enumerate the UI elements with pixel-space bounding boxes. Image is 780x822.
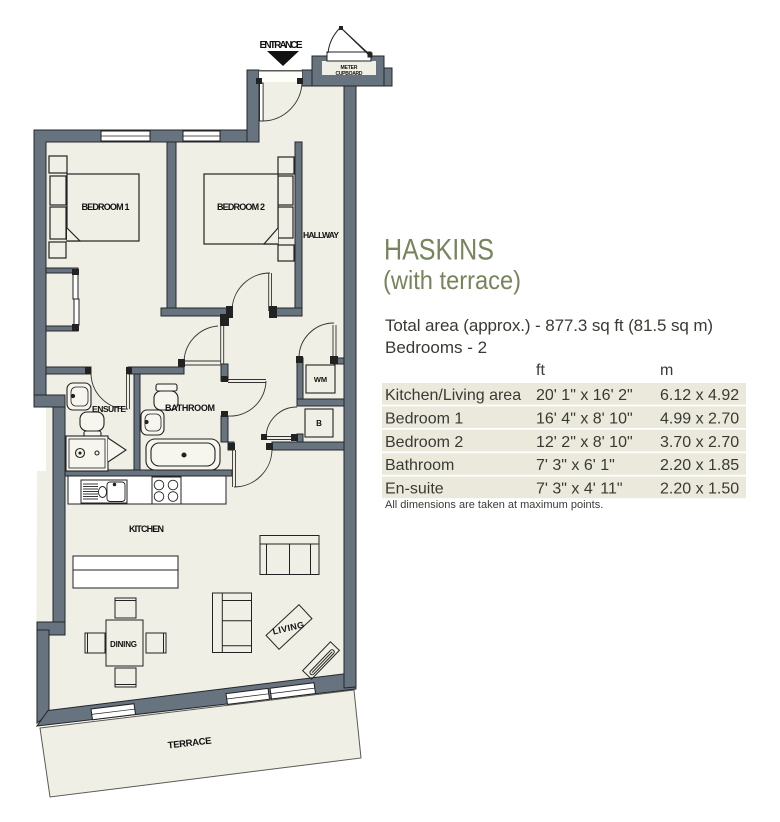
- svg-text:ENSUITE: ENSUITE: [92, 404, 126, 414]
- svg-text:ENTRANCE: ENTRANCE: [260, 40, 303, 51]
- svg-text:4.99 x 2.70: 4.99 x 2.70: [660, 410, 739, 427]
- svg-text:HASKINS: HASKINS: [384, 234, 494, 267]
- svg-text:Bedrooms - 2: Bedrooms - 2: [385, 338, 487, 357]
- svg-text:3.70 x 2.70: 3.70 x 2.70: [660, 434, 739, 451]
- svg-text:B: B: [316, 419, 322, 428]
- svg-text:Total area (approx.) - 877.3 s: Total area (approx.) - 877.3 sq ft (81.5…: [385, 316, 713, 335]
- svg-text:2.20 x 1.50: 2.20 x 1.50: [660, 481, 739, 498]
- svg-text:7' 3" x 6' 1": 7' 3" x 6' 1": [536, 457, 615, 474]
- svg-text:ft: ft: [536, 362, 545, 379]
- svg-text:6.12 x 4.92: 6.12 x 4.92: [660, 387, 739, 404]
- svg-text:WM: WM: [314, 375, 327, 384]
- svg-text:Bedroom 2: Bedroom 2: [385, 434, 463, 451]
- svg-text:BEDROOM 2: BEDROOM 2: [217, 202, 265, 212]
- svg-text:BATHROOM: BATHROOM: [165, 403, 215, 413]
- svg-text:20' 1" x 16' 2": 20' 1" x 16' 2": [536, 387, 633, 404]
- svg-text:7' 3" x 4' 11": 7' 3" x 4' 11": [536, 481, 623, 498]
- svg-text:KITCHEN: KITCHEN: [129, 524, 164, 534]
- svg-text:12' 2" x 8' 10": 12' 2" x 8' 10": [536, 434, 633, 451]
- svg-text:En-suite: En-suite: [385, 481, 444, 498]
- svg-text:All dimensions are taken at ma: All dimensions are taken at maximum poin…: [385, 499, 603, 511]
- svg-text:CUPBOARD: CUPBOARD: [336, 71, 363, 77]
- svg-text:Bedroom 1: Bedroom 1: [385, 410, 463, 427]
- svg-text:HALLWAY: HALLWAY: [303, 230, 339, 240]
- svg-text:Bathroom: Bathroom: [385, 457, 454, 474]
- svg-text:BEDROOM 1: BEDROOM 1: [82, 202, 130, 212]
- svg-text:Kitchen/Living area: Kitchen/Living area: [385, 387, 521, 404]
- svg-text:DINING: DINING: [110, 640, 137, 649]
- svg-text:16' 4" x 8' 10": 16' 4" x 8' 10": [536, 410, 633, 427]
- svg-text:m: m: [660, 362, 673, 379]
- svg-text:(with terrace): (with terrace): [383, 265, 521, 295]
- svg-text:2.20 x 1.85: 2.20 x 1.85: [660, 457, 739, 474]
